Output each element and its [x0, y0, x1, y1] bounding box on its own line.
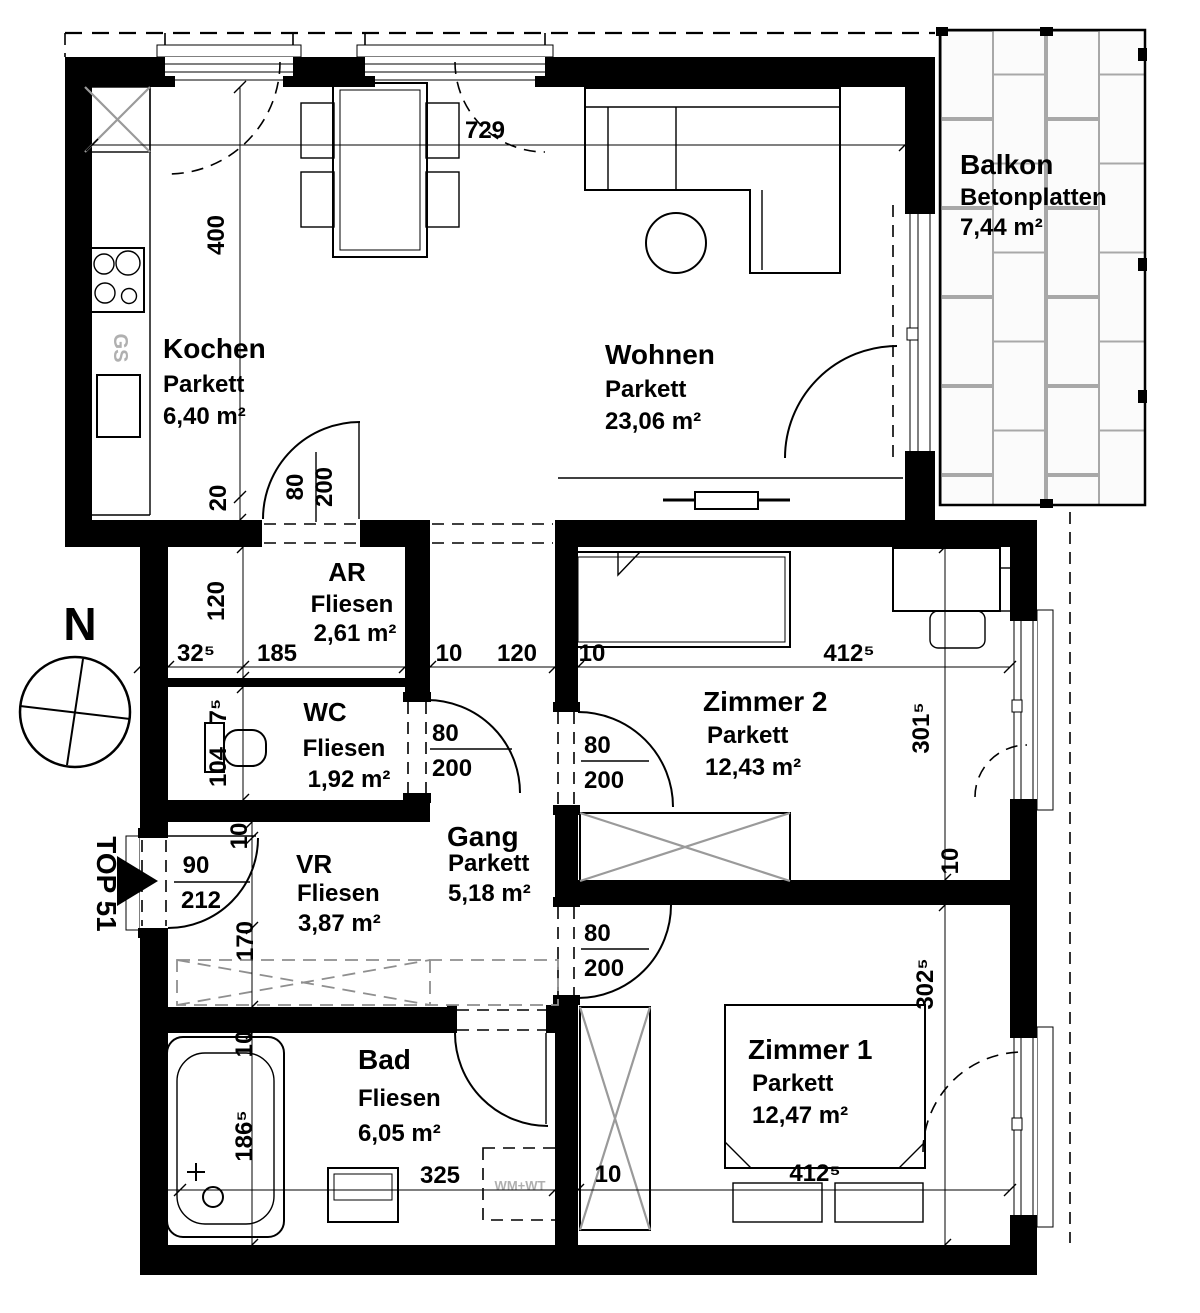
dim-32-5: 32⁵: [177, 640, 215, 667]
dim-120-ar: 120: [203, 581, 230, 621]
room-area-wohnen: 23,06 m²: [605, 408, 701, 435]
door-ar-width: 80: [282, 474, 309, 501]
room-floor-kochen: Parkett: [163, 371, 244, 398]
room-floor-zimmer2: Parkett: [707, 722, 788, 749]
dim-10-e: 10: [231, 1031, 258, 1058]
dim-7-5: 7⁵: [205, 699, 232, 724]
door-wc-height: 200: [432, 755, 472, 782]
room-area-zimmer2: 12,43 m²: [705, 754, 801, 781]
door-z1-height: 200: [584, 955, 624, 982]
door-ar-height: 200: [311, 467, 338, 507]
room-area-wc: 1,92 m²: [308, 766, 391, 793]
dishwasher-label: GS: [109, 334, 131, 363]
dim-729: 729: [465, 117, 505, 144]
room-name-wohnen: Wohnen: [605, 339, 715, 370]
floorplan-page: WM+WT N Kochen Parkett 6,40 m² Wohnen Pa…: [0, 0, 1200, 1313]
room-area-balkon: 7,44 m²: [960, 214, 1043, 241]
room-floor-zimmer1: Parkett: [752, 1070, 833, 1097]
room-area-gang: 5,18 m²: [448, 880, 531, 907]
room-name-vr: VR: [296, 849, 332, 879]
room-floor-bad: Fliesen: [358, 1085, 441, 1112]
door-z1-width: 80: [584, 920, 611, 947]
dim-400: 400: [203, 215, 230, 255]
room-name-gang: Gang: [447, 821, 519, 852]
north-label: N: [63, 598, 96, 650]
room-floor-gang: Parkett: [448, 850, 529, 877]
dim-104: 104: [205, 746, 232, 787]
room-name-zimmer1: Zimmer 1: [748, 1034, 873, 1065]
room-floor-vr: Fliesen: [297, 880, 380, 907]
door-entry-width: 90: [183, 852, 210, 879]
dim-302-5: 302⁵: [912, 958, 939, 1009]
room-floor-balkon: Betonplatten: [960, 184, 1107, 211]
balcony: [936, 27, 1147, 508]
room-area-zimmer1: 12,47 m²: [752, 1102, 848, 1129]
room-name-kochen: Kochen: [163, 333, 266, 364]
door-z2-height: 200: [584, 767, 624, 794]
dim-301-5: 301⁵: [908, 702, 935, 753]
room-name-wc: WC: [303, 697, 347, 727]
dim-10-b: 10: [579, 640, 606, 667]
room-floor-wc: Fliesen: [303, 735, 386, 762]
dim-20: 20: [205, 485, 232, 512]
dim-10-f: 10: [595, 1161, 622, 1188]
dim-186-5: 186⁵: [231, 1110, 258, 1161]
dim-185: 185: [257, 640, 297, 667]
door-wc-width: 80: [432, 720, 459, 747]
floorplan-drawing: WM+WT N Kochen Parkett 6,40 m² Wohnen Pa…: [0, 0, 1200, 1313]
room-name-balkon: Balkon: [960, 149, 1053, 180]
dim-325: 325: [420, 1162, 460, 1189]
washer-dryer-label: WM+WT: [495, 1178, 546, 1193]
room-area-kochen: 6,40 m²: [163, 403, 246, 430]
door-z2-width: 80: [584, 732, 611, 759]
balcony-floor-tiles: [940, 30, 1145, 505]
room-name-bad: Bad: [358, 1044, 411, 1075]
dim-10-d: 10: [226, 823, 253, 850]
dim-412-5-z1: 412⁵: [789, 1160, 840, 1187]
room-area-bad: 6,05 m²: [358, 1120, 441, 1147]
room-name-ar: AR: [328, 557, 366, 587]
unit-label: TOP 51: [91, 836, 122, 931]
room-name-zimmer2: Zimmer 2: [703, 686, 828, 717]
door-entry-height: 212: [181, 887, 221, 914]
dim-10-a: 10: [436, 640, 463, 667]
dim-10-c: 10: [937, 848, 964, 875]
dim-170: 170: [232, 921, 259, 961]
room-area-ar: 2,61 m²: [314, 620, 397, 647]
room-floor-wohnen: Parkett: [605, 376, 686, 403]
dim-120-opening: 120: [497, 640, 537, 667]
opening-gang-wohnen: [430, 520, 555, 547]
room-floor-ar: Fliesen: [311, 591, 394, 618]
room-area-vr: 3,87 m²: [298, 910, 381, 937]
dim-412-5-z2: 412⁵: [823, 640, 874, 667]
